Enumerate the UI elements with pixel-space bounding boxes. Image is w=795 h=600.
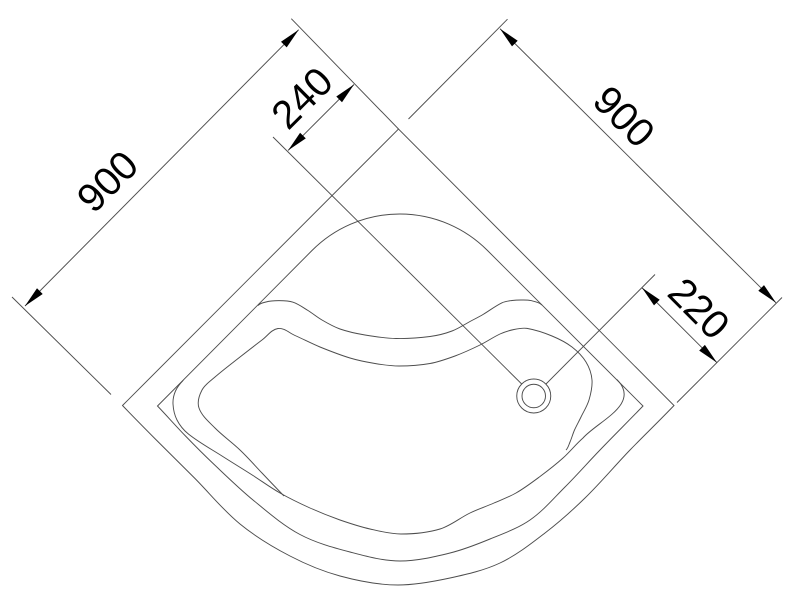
svg-text:220: 220 (659, 270, 737, 348)
svg-text:900: 900 (584, 78, 662, 156)
svg-text:240: 240 (263, 59, 341, 137)
svg-text:900: 900 (69, 143, 147, 221)
